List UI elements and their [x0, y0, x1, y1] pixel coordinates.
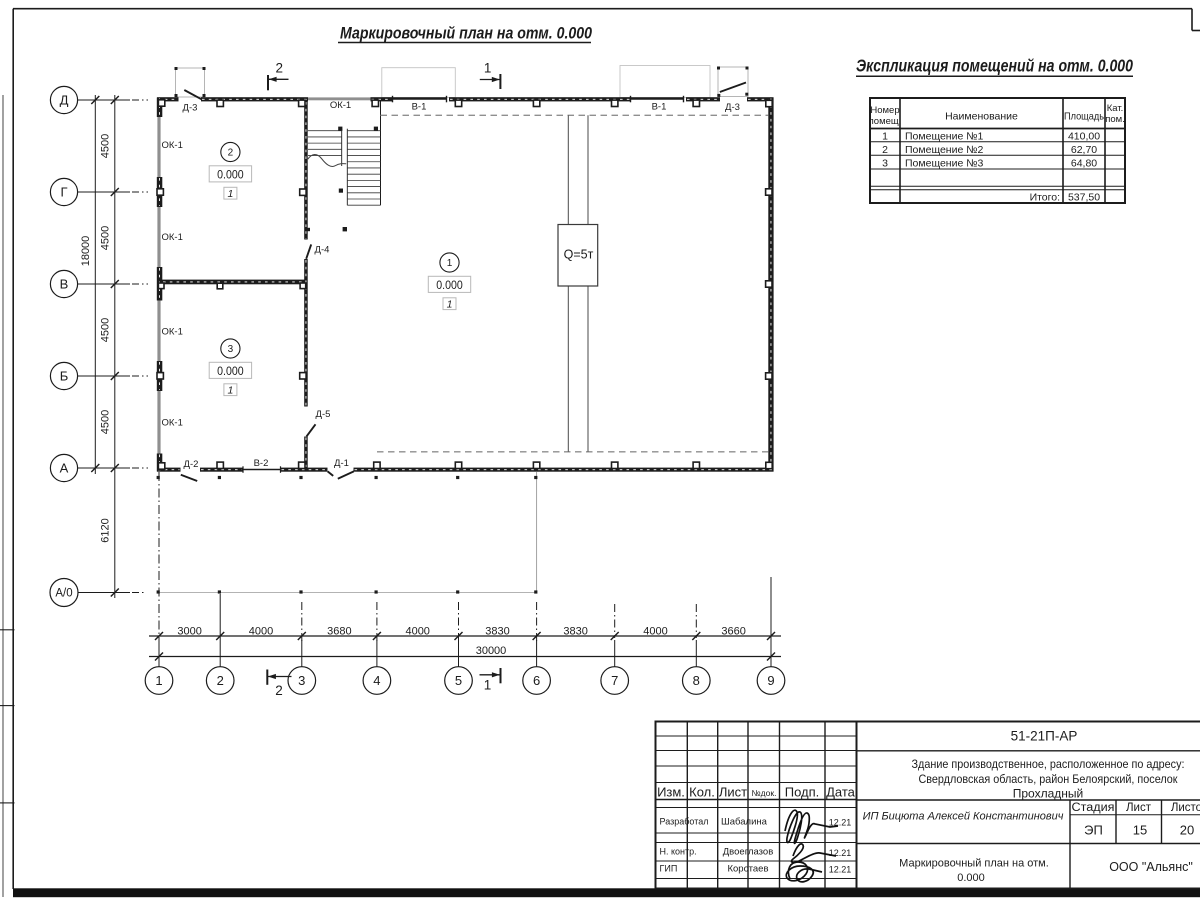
svg-text:Двоеглазов: Двоеглазов — [723, 847, 774, 858]
svg-text:4000: 4000 — [643, 625, 667, 637]
svg-text:6: 6 — [533, 673, 540, 688]
svg-text:Д-4: Д-4 — [315, 244, 330, 255]
svg-text:20: 20 — [1180, 822, 1194, 837]
svg-text:64,80: 64,80 — [1071, 158, 1097, 170]
svg-text:Экспликация помещений на отм.: Экспликация помещений на отм. 0.000 — [856, 56, 1133, 76]
svg-text:4500: 4500 — [99, 318, 111, 342]
svg-text:8: 8 — [693, 673, 700, 688]
svg-text:4: 4 — [373, 673, 380, 688]
svg-text:Д: Д — [60, 93, 69, 108]
svg-text:4500: 4500 — [99, 134, 111, 158]
svg-text:Д-5: Д-5 — [316, 409, 331, 420]
svg-text:ООО "Альянс": ООО "Альянс" — [1109, 860, 1193, 874]
svg-text:2: 2 — [882, 144, 888, 156]
svg-text:А/0: А/0 — [55, 588, 72, 600]
svg-text:5: 5 — [455, 673, 462, 688]
svg-text:0.000: 0.000 — [217, 364, 244, 378]
svg-text:В: В — [60, 277, 69, 292]
svg-text:3830: 3830 — [485, 625, 509, 637]
svg-text:Подп.: Подп. — [785, 785, 820, 800]
svg-text:4000: 4000 — [249, 625, 273, 637]
svg-text:2: 2 — [228, 148, 234, 159]
svg-text:0.000: 0.000 — [957, 872, 985, 884]
svg-text:ОК-1: ОК-1 — [162, 418, 183, 429]
svg-text:ОК-1: ОК-1 — [162, 232, 183, 243]
svg-text:Коротаев: Коротаев — [727, 864, 768, 875]
svg-text:ОК-1: ОК-1 — [330, 100, 351, 111]
svg-text:1: 1 — [227, 384, 233, 396]
svg-text:помещ.: помещ. — [869, 116, 902, 127]
svg-text:51-21П-АР: 51-21П-АР — [1011, 729, 1078, 744]
svg-text:Листов: Листов — [1171, 802, 1200, 814]
svg-text:2: 2 — [217, 673, 224, 688]
svg-text:Изм.: Изм. — [657, 785, 685, 800]
svg-text:Помещение №3: Помещение №3 — [905, 158, 983, 170]
svg-text:Д-2: Д-2 — [184, 459, 199, 470]
svg-text:0.000: 0.000 — [436, 278, 463, 292]
svg-text:Помещение №1: Помещение №1 — [905, 130, 983, 142]
svg-text:2: 2 — [275, 683, 283, 698]
svg-text:537,50: 537,50 — [1068, 191, 1100, 203]
svg-text:Маркировочный план на отм. 0.0: Маркировочный план на отм. 0.000 — [340, 23, 592, 42]
svg-text:15: 15 — [1133, 822, 1147, 837]
svg-text:3: 3 — [298, 673, 305, 688]
svg-text:Д-3: Д-3 — [183, 103, 198, 114]
svg-text:12.21: 12.21 — [829, 865, 852, 875]
svg-text:0.000: 0.000 — [217, 167, 244, 181]
svg-text:В-2: В-2 — [254, 458, 269, 469]
svg-text:Лист: Лист — [1126, 802, 1152, 814]
svg-text:В-1: В-1 — [412, 102, 427, 113]
svg-text:Q=5т: Q=5т — [564, 247, 594, 261]
svg-text:3680: 3680 — [327, 625, 351, 637]
svg-text:ИП Бицюта Алексей Константинов: ИП Бицюта Алексей Константинович — [863, 811, 1064, 823]
svg-text:1: 1 — [882, 130, 888, 142]
svg-text:Б: Б — [60, 369, 69, 384]
svg-text:Кат.: Кат. — [1107, 103, 1124, 114]
svg-text:9: 9 — [767, 673, 774, 688]
svg-text:Помещение №2: Помещение №2 — [905, 144, 983, 156]
svg-text:ГИП: ГИП — [660, 864, 678, 874]
svg-text:1: 1 — [155, 673, 162, 688]
svg-text:Свердловская область, район Бе: Свердловская область, район Белоярский, … — [919, 772, 1179, 786]
svg-text:А: А — [60, 461, 69, 476]
svg-text:ОК-1: ОК-1 — [162, 327, 183, 338]
svg-text:3660: 3660 — [721, 625, 745, 637]
svg-text:Номер: Номер — [870, 105, 899, 116]
svg-text:30000: 30000 — [476, 645, 507, 657]
svg-text:Н. контр.: Н. контр. — [660, 847, 697, 857]
svg-text:Здание производственное, распо: Здание производственное, расположенное п… — [912, 757, 1185, 771]
svg-text:3: 3 — [882, 158, 888, 170]
svg-text:Стадия: Стадия — [1072, 802, 1115, 814]
svg-text:В-1: В-1 — [652, 102, 667, 113]
svg-text:2: 2 — [276, 61, 284, 76]
svg-text:1: 1 — [484, 678, 492, 693]
svg-text:пом.: пом. — [1105, 114, 1125, 125]
svg-text:ОК-1: ОК-1 — [162, 140, 183, 151]
svg-text:Г: Г — [60, 185, 67, 200]
svg-text:Шабалина: Шабалина — [721, 817, 768, 828]
svg-text:1: 1 — [227, 188, 233, 200]
svg-text:1: 1 — [447, 298, 453, 310]
svg-text:Прохладный: Прохладный — [1013, 787, 1083, 801]
svg-text:1: 1 — [447, 258, 453, 269]
svg-text:6120: 6120 — [100, 518, 112, 542]
svg-text:Разработал: Разработал — [660, 817, 709, 827]
svg-text:12.21: 12.21 — [829, 848, 852, 858]
svg-text:18000: 18000 — [80, 236, 92, 267]
svg-text:3: 3 — [228, 344, 234, 355]
svg-text:Маркировочный план на отм.: Маркировочный план на отм. — [899, 858, 1049, 870]
svg-text:ЭП: ЭП — [1084, 822, 1103, 837]
svg-text:Д-1: Д-1 — [334, 458, 349, 469]
svg-text:7: 7 — [611, 673, 618, 688]
svg-text:62,70: 62,70 — [1071, 144, 1097, 156]
svg-text:Наименование: Наименование — [945, 111, 1018, 123]
svg-text:Итого:: Итого: — [1030, 191, 1060, 203]
svg-text:4500: 4500 — [99, 410, 111, 434]
svg-text:4500: 4500 — [99, 226, 111, 250]
svg-text:Дата: Дата — [826, 785, 856, 800]
svg-text:Д-3: Д-3 — [725, 102, 740, 113]
svg-text:Кол.: Кол. — [689, 785, 715, 800]
svg-text:№док.: №док. — [752, 788, 777, 798]
svg-text:4000: 4000 — [405, 625, 429, 637]
svg-text:Площадь: Площадь — [1064, 111, 1104, 123]
svg-text:3000: 3000 — [177, 625, 201, 637]
svg-text:1: 1 — [484, 61, 492, 76]
svg-text:Лист: Лист — [719, 785, 747, 800]
svg-text:410,00: 410,00 — [1068, 130, 1100, 142]
svg-text:3830: 3830 — [563, 625, 587, 637]
